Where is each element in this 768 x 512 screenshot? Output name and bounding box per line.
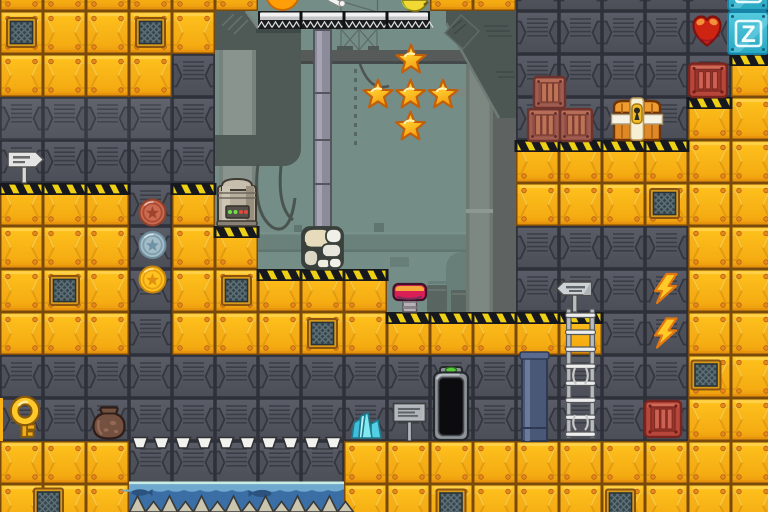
svg-text:Z: Z	[741, 0, 756, 4]
svg-text:Z: Z	[741, 21, 756, 48]
